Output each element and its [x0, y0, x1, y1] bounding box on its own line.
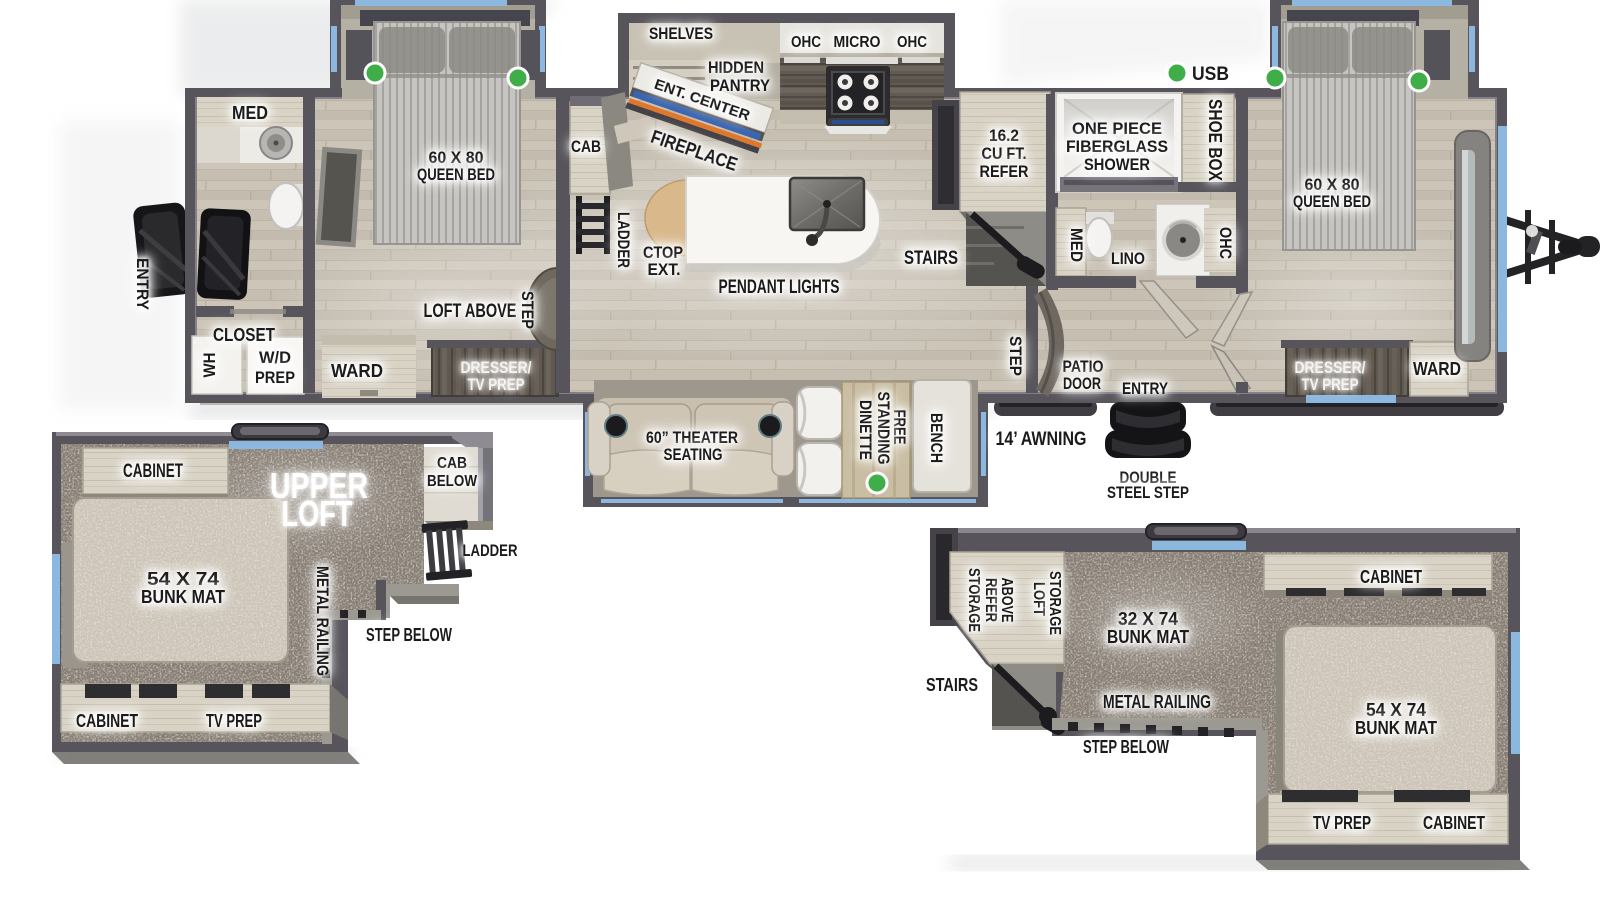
- svg-text:TV PREP: TV PREP: [1313, 813, 1371, 833]
- svg-text:WARD: WARD: [331, 361, 383, 381]
- svg-text:BENCH: BENCH: [927, 413, 946, 463]
- svg-text:STORAGE: STORAGE: [1046, 571, 1063, 635]
- svg-text:STORAGE: STORAGE: [965, 568, 982, 632]
- svg-text:SHOE BOX: SHOE BOX: [1205, 99, 1225, 181]
- svg-text:LADDER: LADDER: [463, 541, 518, 560]
- svg-text:CAB: CAB: [571, 137, 601, 156]
- svg-text:LOFT: LOFT: [282, 493, 353, 534]
- svg-text:W/D: W/D: [259, 348, 291, 367]
- svg-text:TV PREP: TV PREP: [1302, 375, 1359, 394]
- svg-text:WARD: WARD: [1413, 359, 1461, 379]
- svg-text:14’ AWNING: 14’ AWNING: [996, 429, 1087, 450]
- svg-text:CABINET: CABINET: [1360, 567, 1422, 587]
- svg-text:LOFT: LOFT: [1030, 582, 1047, 616]
- svg-text:HIDDEN: HIDDEN: [708, 58, 764, 77]
- svg-text:MED: MED: [232, 103, 268, 123]
- svg-text:54 X 74: 54 X 74: [147, 569, 219, 589]
- svg-text:16.2: 16.2: [989, 126, 1019, 145]
- svg-text:CABINET: CABINET: [1423, 813, 1485, 833]
- svg-text:SHOWER: SHOWER: [1084, 155, 1150, 174]
- svg-text:CAB: CAB: [437, 455, 467, 472]
- svg-text:MICRO: MICRO: [834, 34, 881, 51]
- svg-text:TV PREP: TV PREP: [468, 375, 525, 394]
- svg-text:REFER: REFER: [980, 162, 1029, 181]
- svg-text:METAL RAILING: METAL RAILING: [1103, 692, 1211, 712]
- svg-text:ABOVE: ABOVE: [998, 578, 1015, 623]
- svg-text:OHC: OHC: [791, 34, 821, 51]
- svg-text:QUEEN BED: QUEEN BED: [1293, 192, 1371, 211]
- svg-text:PANTRY: PANTRY: [710, 76, 771, 95]
- svg-text:CLOSET: CLOSET: [213, 325, 275, 345]
- svg-text:ONE PIECE: ONE PIECE: [1072, 119, 1162, 138]
- svg-text:STEEL STEP: STEEL STEP: [1107, 483, 1189, 502]
- svg-text:SHELVES: SHELVES: [649, 24, 713, 43]
- svg-text:CABINET: CABINET: [76, 711, 138, 731]
- svg-text:OHC: OHC: [1216, 227, 1235, 259]
- svg-text:STEP BELOW: STEP BELOW: [1083, 737, 1169, 757]
- svg-text:OHC: OHC: [897, 34, 927, 51]
- svg-text:EXT.: EXT.: [648, 260, 681, 279]
- svg-text:ENTRY: ENTRY: [1122, 379, 1169, 398]
- svg-text:PENDANT LIGHTS: PENDANT LIGHTS: [719, 277, 840, 298]
- svg-text:STANDING: STANDING: [874, 392, 893, 465]
- svg-text:STEP: STEP: [1006, 336, 1025, 376]
- svg-text:WH: WH: [200, 353, 219, 378]
- svg-text:CU FT.: CU FT.: [982, 144, 1027, 163]
- svg-text:QUEEN BED: QUEEN BED: [417, 165, 495, 184]
- svg-text:USB: USB: [1192, 64, 1229, 85]
- svg-text:REFER: REFER: [982, 578, 999, 622]
- svg-text:SEATING: SEATING: [664, 445, 723, 464]
- svg-text:TV PREP: TV PREP: [206, 711, 262, 731]
- svg-text:STAIRS: STAIRS: [904, 248, 958, 269]
- svg-text:STAIRS: STAIRS: [926, 675, 978, 695]
- svg-text:BUNK MAT: BUNK MAT: [1355, 718, 1437, 738]
- svg-text:ENTRY: ENTRY: [133, 258, 152, 311]
- svg-text:METAL RAILING: METAL RAILING: [313, 566, 332, 676]
- svg-text:STEP: STEP: [518, 291, 537, 329]
- svg-text:LADDER: LADDER: [614, 212, 633, 268]
- svg-text:54 X 74: 54 X 74: [1366, 700, 1426, 720]
- svg-text:MED: MED: [1067, 228, 1086, 262]
- svg-text:32 X 74: 32 X 74: [1118, 609, 1178, 629]
- svg-text:STEP BELOW: STEP BELOW: [366, 625, 452, 645]
- svg-text:DOOR: DOOR: [1063, 374, 1101, 393]
- svg-text:BELOW: BELOW: [427, 473, 478, 490]
- svg-text:BUNK MAT: BUNK MAT: [1107, 627, 1189, 647]
- svg-text:BUNK MAT: BUNK MAT: [141, 587, 225, 607]
- svg-text:DINETTE: DINETTE: [856, 400, 875, 460]
- svg-text:LINO: LINO: [1111, 249, 1145, 268]
- svg-text:CABINET: CABINET: [123, 461, 183, 482]
- svg-text:LOFT ABOVE: LOFT ABOVE: [424, 301, 517, 322]
- svg-text:PREP: PREP: [255, 368, 295, 387]
- svg-text:FIBERGLASS: FIBERGLASS: [1066, 137, 1168, 156]
